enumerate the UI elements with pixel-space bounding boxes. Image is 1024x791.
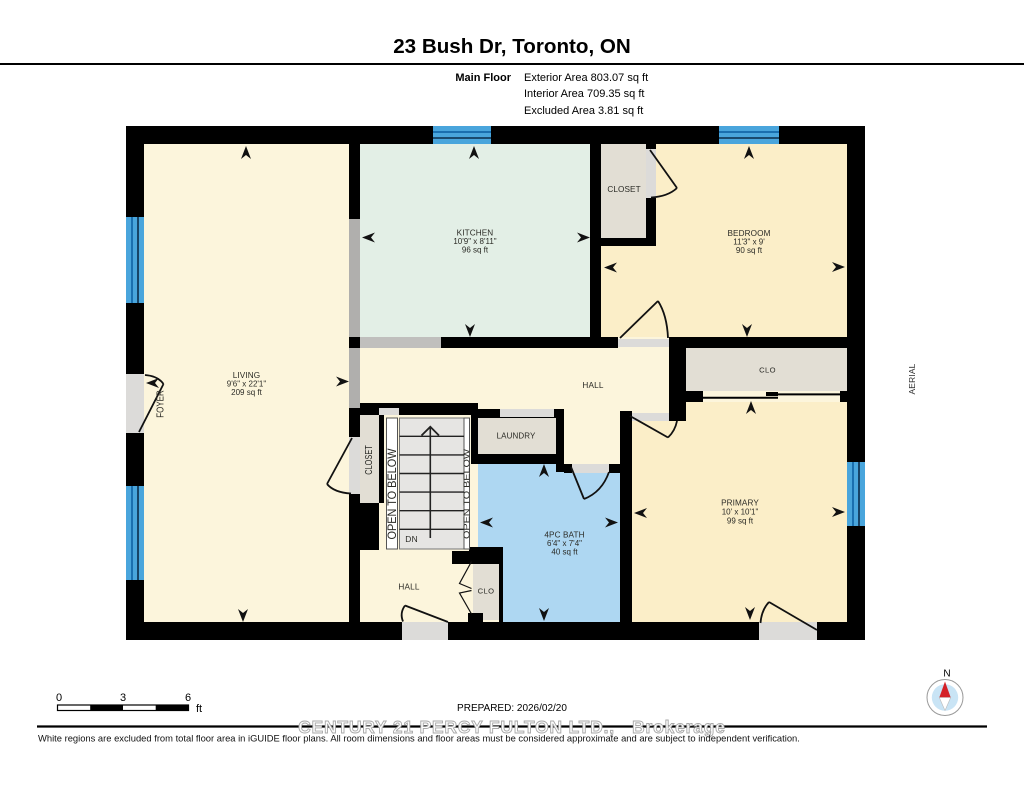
svg-text:209 sq ft: 209 sq ft <box>231 388 262 397</box>
svg-text:FOYER: FOYER <box>155 390 167 418</box>
svg-text:99 sq ft: 99 sq ft <box>727 517 754 526</box>
svg-text:CLOSET: CLOSET <box>607 185 640 194</box>
svg-text:ft: ft <box>196 703 202 715</box>
svg-text:3: 3 <box>120 692 126 704</box>
svg-text:90 sq ft: 90 sq ft <box>736 246 763 255</box>
svg-text:HALL: HALL <box>582 381 604 390</box>
svg-text:CLOSET: CLOSET <box>363 445 375 475</box>
svg-text:96 sq ft: 96 sq ft <box>462 246 489 255</box>
svg-text:CLO: CLO <box>759 366 776 375</box>
svg-text:6: 6 <box>185 692 191 704</box>
svg-text:DN: DN <box>405 534 418 544</box>
svg-text:N: N <box>943 669 950 680</box>
svg-text:CLO: CLO <box>478 587 495 596</box>
svg-text:LAUNDRY: LAUNDRY <box>497 432 536 441</box>
svg-text:HALL: HALL <box>398 583 420 592</box>
svg-text:OPEN TO BELOW: OPEN TO BELOW <box>462 449 472 539</box>
svg-text:AERIAL: AERIAL <box>907 363 917 394</box>
svg-text:OPEN TO BELOW: OPEN TO BELOW <box>387 448 399 539</box>
svg-text:PRIMARY: PRIMARY <box>721 499 759 508</box>
svg-text:40 sq ft: 40 sq ft <box>551 548 578 557</box>
svg-text:10' x 10'1": 10' x 10'1" <box>722 508 759 517</box>
svg-text:White regions are excluded fro: White regions are excluded from total fl… <box>38 733 800 744</box>
svg-text:PREPARED: 2026/02/20: PREPARED: 2026/02/20 <box>457 703 567 714</box>
svg-text:0: 0 <box>56 692 62 704</box>
